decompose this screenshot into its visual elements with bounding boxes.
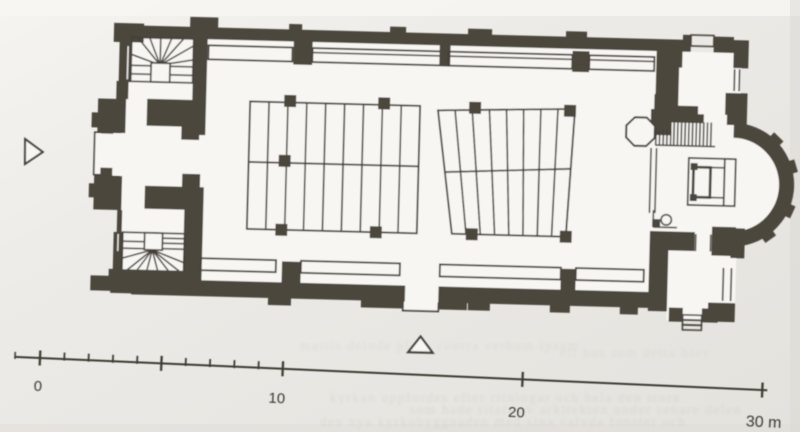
svg-text:den nya kyrkobyggnaden med sin: den nya kyrkobyggnaden med sina valvda f…: [320, 414, 686, 429]
svg-text:10: 10: [268, 390, 285, 408]
svg-text:30 m: 30 m: [745, 413, 781, 432]
svg-text:20: 20: [508, 404, 525, 422]
svg-text:0: 0: [33, 378, 42, 395]
svg-text:ett hus som detta blev: ett hus som detta blev: [560, 345, 711, 360]
svg-text:mattis deinde plura contra ver: mattis deinde plura contra verbum ipsum: [300, 338, 580, 353]
